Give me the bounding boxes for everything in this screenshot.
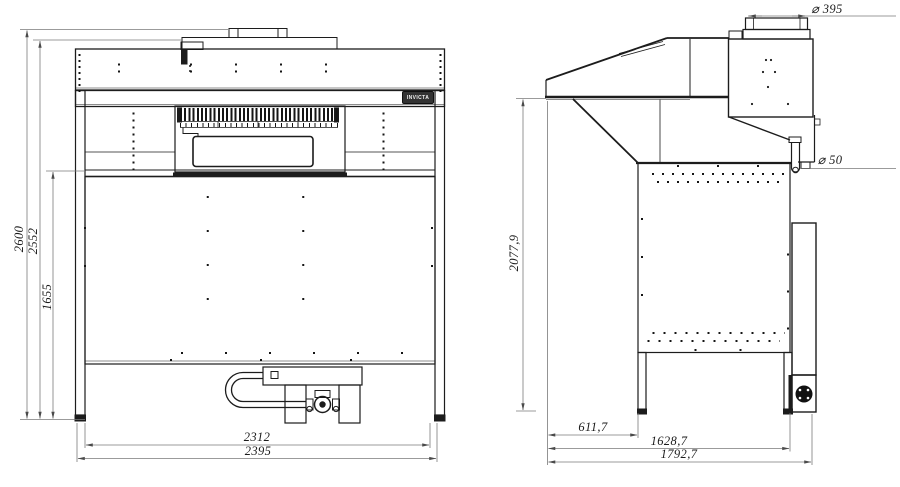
side-bottom-perforation-row (643, 339, 780, 343)
front-beam (76, 91, 445, 107)
side-fan-housing (729, 18, 814, 140)
side-right-rivet-column (786, 236, 790, 354)
front-gas-train (226, 367, 363, 423)
front-roof-platform (182, 38, 337, 50)
side-left-rivet-column (640, 200, 644, 320)
dim-label-body-height: 2552 (27, 228, 40, 255)
dim-label-frame-depth: 1628,7 (651, 435, 688, 448)
dim-label-front-offset: 611,7 (578, 421, 607, 434)
side-hood (545, 38, 729, 163)
front-base-rivet-row (126, 358, 402, 362)
dim-label-overall-width: 2395 (245, 445, 272, 458)
hood-rivet-pair (189, 61, 193, 73)
side-chimney-base (743, 30, 810, 40)
front-foot-right (435, 415, 446, 421)
front-body-rivet-grid (160, 180, 356, 321)
side-upper-rivet-row (658, 164, 782, 168)
side-hood-underside (573, 99, 638, 163)
front-body-bottom-rivet-row (160, 351, 430, 355)
front-body-edge-rivets-right (430, 209, 434, 293)
hood-rivet-pair (117, 61, 121, 73)
technical-drawing-canvas: INVICTA 2600 2552 1655 2312 2395 2077,9 … (0, 0, 900, 487)
front-mid-rivet-column-left (131, 110, 136, 170)
hood-rivet-pair (324, 61, 328, 73)
dim-label-hood-height: 2077,9 (508, 235, 521, 272)
hood-rivet-pair (234, 61, 238, 73)
dim-label-drain-diameter: ⌀ 50 (818, 154, 843, 167)
gas-loop-pipe (226, 373, 307, 408)
brand-logo-text: INVICTA (407, 95, 429, 101)
side-chimney-collar (746, 18, 808, 30)
front-mid-rivet-column-right (381, 110, 386, 170)
side-drain-assembly (789, 115, 820, 173)
side-body (638, 163, 790, 353)
dim-label-duct-diameter: ⌀ 395 (811, 3, 842, 16)
dim-label-worktop-height: 1655 (41, 284, 54, 311)
brand-logo-badge: INVICTA (402, 91, 434, 104)
front-louver-ticks (180, 123, 338, 127)
front-hood-box (76, 49, 445, 90)
side-rear-panel (789, 223, 817, 412)
dim-label-overall-depth: 1792,7 (661, 448, 698, 461)
dim-label-inner-width: 2312 (244, 431, 271, 444)
front-louver-slats (180, 108, 338, 121)
front-support-leg-right (339, 385, 360, 423)
side-top-perforation-row (648, 172, 785, 176)
side-lower-rivet-row (673, 348, 769, 352)
front-foot-left (75, 415, 86, 421)
front-pillar-right (435, 91, 445, 416)
side-top-perforation-row (653, 180, 786, 184)
side-bottom-perforation-row (648, 331, 785, 335)
front-right-rivet-column (438, 52, 443, 94)
front-window (193, 137, 313, 167)
drain-pipe-cap (789, 137, 801, 143)
front-support-leg-left (285, 385, 306, 423)
dim-label-overall-height: 2600 (13, 226, 26, 253)
hood-rivet-pair (279, 61, 283, 73)
front-body-edge-rivets-left (83, 209, 87, 293)
side-leg-front (638, 353, 646, 410)
motor-fan (796, 386, 813, 403)
front-left-rivet-column (77, 52, 82, 94)
dimension-lines (20, 16, 896, 465)
gas-valve (306, 391, 340, 413)
drawing-linework (0, 0, 900, 487)
side-view (545, 18, 820, 414)
